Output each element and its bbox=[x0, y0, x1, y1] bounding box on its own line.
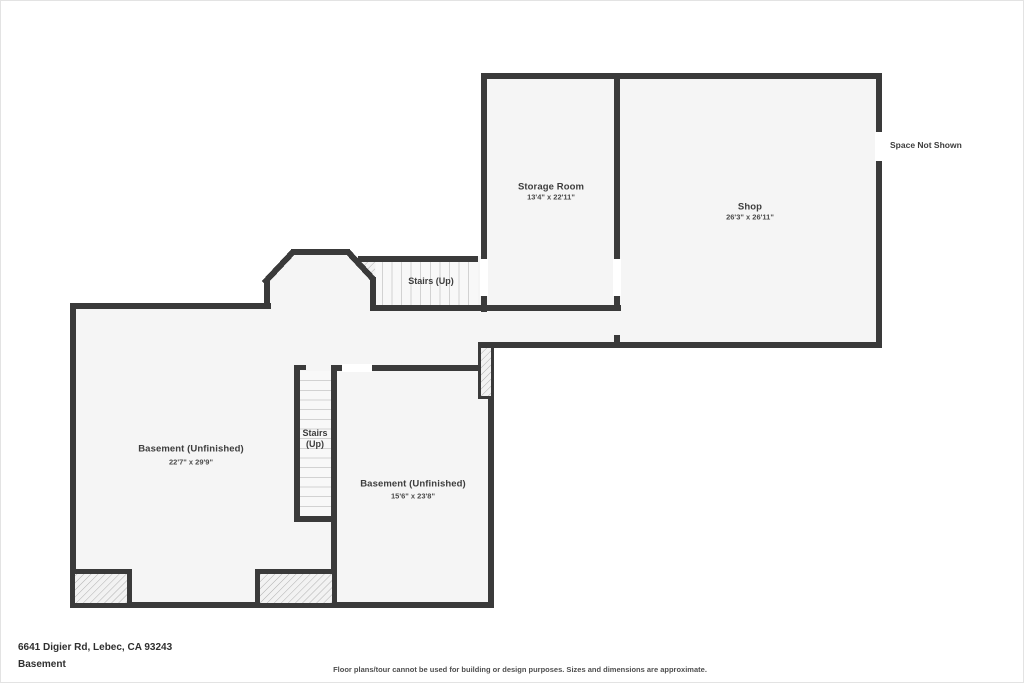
wall-midstairs-bottom bbox=[294, 516, 337, 522]
wall-rb-right bbox=[488, 394, 494, 608]
hatch-pad-mid bbox=[258, 572, 335, 606]
wall-storage-shop-divider bbox=[614, 79, 620, 259]
shop-label: Shop bbox=[738, 202, 762, 213]
opening-basement-right bbox=[342, 364, 372, 372]
wall-storage-left-upper bbox=[481, 73, 487, 260]
wall-shop-right-upper bbox=[876, 73, 882, 132]
shop-dims: 26'3" x 26'11" bbox=[726, 213, 774, 222]
wall-stairs-left bbox=[370, 277, 376, 307]
basement-right-dims: 15'6" x 23'8" bbox=[391, 492, 435, 501]
hatch-pad-left bbox=[73, 572, 130, 606]
floor-plan-page: Storage Room 13'4" x 22'11" Shop 26'3" x… bbox=[0, 0, 1024, 683]
wall-stairs-top bbox=[358, 256, 478, 262]
interior-fills bbox=[70, 73, 882, 608]
disclaimer-text: Floor plans/tour cannot be used for buil… bbox=[333, 665, 707, 674]
floor-name-text: Basement bbox=[18, 659, 66, 670]
wall-divider-stub-b bbox=[614, 335, 620, 342]
storage-room-dims: 13'4" x 22'11" bbox=[527, 193, 575, 202]
wall-rb-top-left bbox=[331, 365, 342, 371]
basement-left-label: Basement (Unfinished) bbox=[138, 444, 244, 455]
wall-basement-left bbox=[70, 303, 76, 608]
wall-shop-right-lower bbox=[876, 161, 882, 348]
opening-space-not-shown bbox=[875, 132, 883, 161]
wall-top bbox=[481, 73, 882, 79]
wall-midstairs-top-tick bbox=[294, 365, 306, 370]
wall-bump-top bbox=[291, 249, 350, 255]
wall-shop-bottom bbox=[478, 342, 882, 348]
stairs-mid-line2: (Up) bbox=[302, 439, 327, 450]
basement-right-label: Basement (Unfinished) bbox=[360, 479, 466, 490]
opening-storage-left bbox=[480, 259, 488, 296]
space-not-shown-label: Space Not Shown bbox=[890, 140, 962, 150]
floor-plan-drawing bbox=[0, 0, 1024, 683]
stairs-mid-line1: Stairs bbox=[302, 428, 327, 439]
address-text: 6641 Digier Rd, Lebec, CA 93243 bbox=[18, 642, 172, 653]
storage-room-label: Storage Room bbox=[518, 182, 584, 193]
opening-storage-shop bbox=[613, 259, 621, 296]
wall-storage-bottom bbox=[370, 305, 621, 311]
wall-basement-top bbox=[70, 303, 271, 309]
wall-rb-top-right bbox=[372, 365, 481, 371]
stairs-upper-label: Stairs (Up) bbox=[408, 276, 454, 286]
stairs-mid-label: Stairs (Up) bbox=[302, 428, 327, 450]
basement-left-dims: 22'7" x 29'9" bbox=[169, 458, 213, 467]
room-basement-area bbox=[70, 303, 494, 608]
hatch-column bbox=[480, 347, 493, 398]
wall-midstairs-left bbox=[294, 365, 300, 522]
